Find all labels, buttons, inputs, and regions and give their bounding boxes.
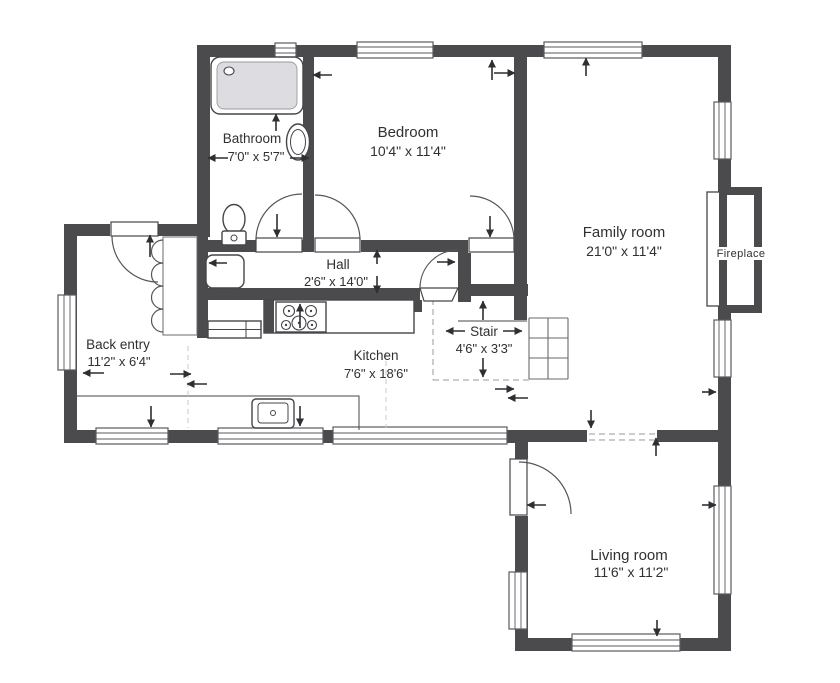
window [509, 572, 527, 629]
room-label-hall: Hall 2'6" x 14'0" [304, 257, 368, 289]
room-dims: 4'6" x 3'3" [456, 341, 513, 356]
room-label-kitchen: Kitchen 7'6" x 18'6" [344, 348, 408, 381]
window [714, 320, 731, 377]
window [96, 428, 168, 444]
floor-plan-page: Bathroom 7'0" x 5'7" Bedroom 10'4" x 11'… [0, 0, 840, 683]
window [714, 102, 731, 159]
window [544, 42, 642, 58]
window [357, 42, 433, 58]
room-dims: 2'6" x 14'0" [304, 274, 368, 289]
room-label-living-room: Living room 11'6" x 11'2" [590, 547, 668, 580]
toilet [222, 205, 246, 246]
stove [276, 302, 326, 332]
room-name: Living room [590, 547, 668, 564]
bathroom-door [256, 194, 302, 252]
window [275, 43, 296, 58]
kitchen-sink [252, 399, 294, 428]
window [58, 295, 76, 370]
floor-plan-drawing: Bathroom 7'0" x 5'7" Bedroom 10'4" x 11'… [0, 0, 840, 683]
room-name: Family room [583, 224, 666, 241]
room-dims: 7'6" x 18'6" [344, 366, 408, 381]
bathroom-sink [287, 124, 310, 160]
room-name: Back entry [86, 337, 150, 352]
fireplace-label-text: Fireplace [717, 248, 766, 260]
room-label-bathroom: Bathroom 7'0" x 5'7" [223, 131, 285, 164]
window [218, 428, 323, 444]
room-label-back-entry: Back entry 11'2" x 6'4" [86, 337, 151, 369]
room-name: Stair [470, 324, 498, 339]
bathtub [211, 57, 303, 114]
hall-east-door [420, 250, 458, 301]
room-label-family-room: Family room 21'0" x 11'4" [583, 224, 666, 259]
stairs [433, 299, 568, 380]
room-dims: 21'0" x 11'4" [586, 243, 662, 259]
window [714, 486, 731, 594]
living-room-door [510, 459, 571, 515]
room-name: Hall [326, 257, 349, 272]
bedroom-door [315, 195, 360, 252]
room-label-bedroom: Bedroom 10'4" x 11'4" [370, 124, 446, 159]
room-name: Bedroom [378, 124, 439, 141]
room-dims: 11'6" x 11'2" [594, 564, 669, 580]
bifold-closet [152, 237, 198, 335]
kitchen-counter-west [208, 321, 261, 338]
room-dims: 11'2" x 6'4" [87, 354, 150, 369]
kitchen-counter-south [77, 396, 359, 430]
room-name: Kitchen [353, 348, 398, 363]
room-dims: 10'4" x 11'4" [370, 143, 446, 159]
room-label-stair: Stair 4'6" x 3'3" [456, 324, 513, 356]
room-dims: 7'0" x 5'7" [228, 149, 285, 164]
fireplace-label: Fireplace [717, 248, 766, 260]
window [572, 634, 680, 651]
room-name: Bathroom [223, 131, 282, 146]
landing-door [469, 196, 514, 252]
hall-cabinet [206, 255, 244, 288]
